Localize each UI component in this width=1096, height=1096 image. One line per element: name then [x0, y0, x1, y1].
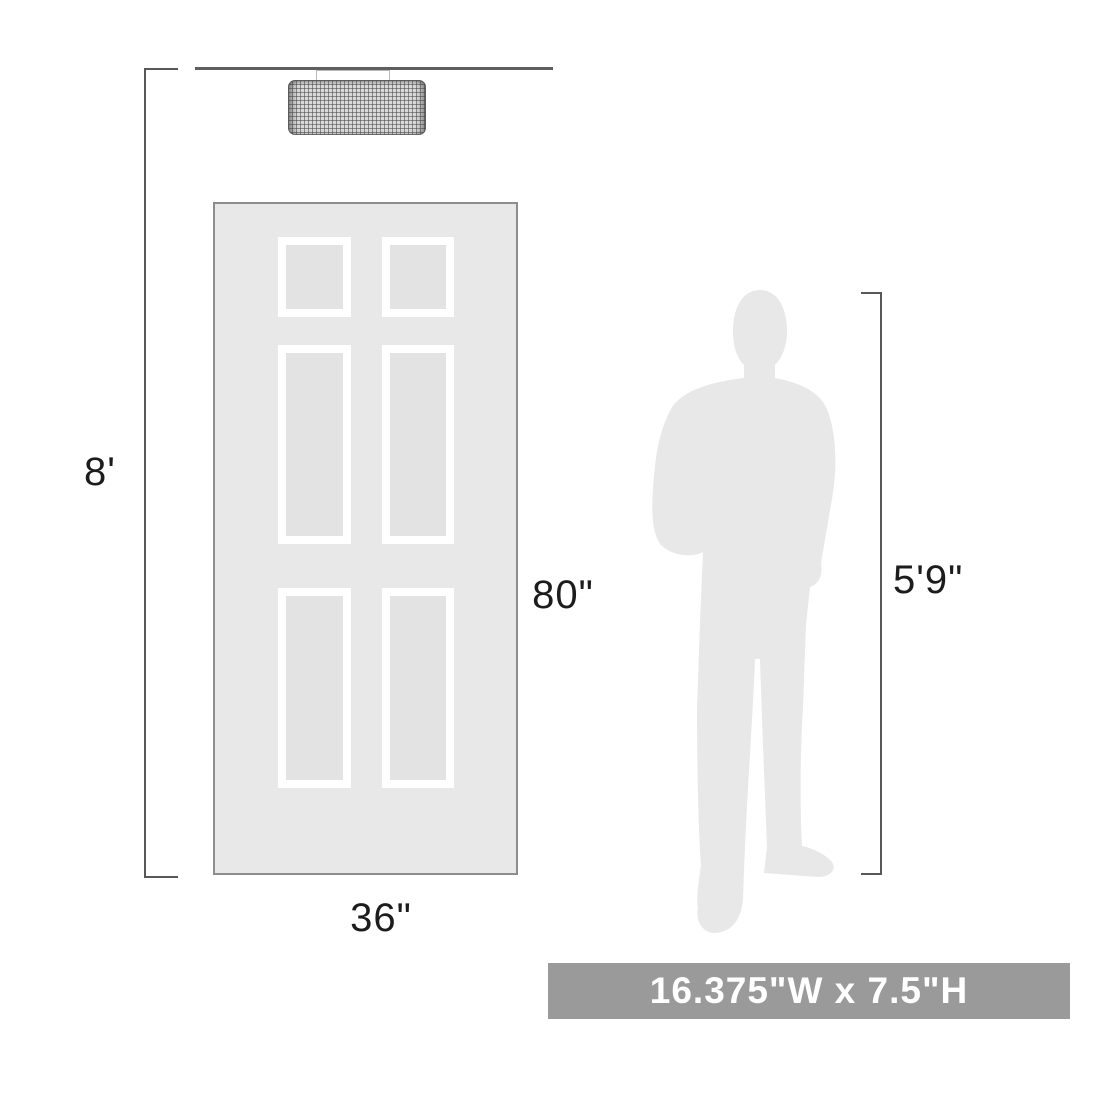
- door-panel: [382, 345, 454, 544]
- dimension-tick-top: [861, 292, 882, 294]
- dimension-tick-bottom: [144, 876, 178, 878]
- door-width-label: 36": [334, 896, 428, 941]
- person-silhouette: [648, 287, 848, 937]
- fixture-size-banner: 16.375"W x 7.5"H: [548, 963, 1070, 1019]
- fixture-size-text: 16.375"W x 7.5"H: [650, 970, 968, 1012]
- door-panel: [278, 345, 351, 544]
- door-panel: [278, 588, 351, 788]
- dimension-tick-bottom: [861, 873, 882, 875]
- dimension-vertical-line: [880, 292, 882, 875]
- dimension-tick-top: [144, 68, 178, 70]
- door-panel: [278, 237, 351, 317]
- product-dimensions-diagram: 8' 80" 36" 5'9" 16.375"W x 7.5"H: [0, 0, 1096, 1096]
- person-height-dimension-line: [861, 292, 882, 875]
- ceiling-height-dimension-line: [144, 68, 178, 878]
- person-silhouette-shape: [652, 290, 835, 933]
- ceiling-height-label: 8': [58, 450, 142, 495]
- door-panel: [382, 588, 454, 788]
- fixture-drum-shade: [288, 80, 426, 135]
- door-height-label: 80": [516, 573, 610, 618]
- dimension-vertical-line: [144, 68, 146, 878]
- person-height-label: 5'9": [893, 558, 963, 603]
- six-panel-door: [213, 202, 518, 875]
- door-panel: [382, 237, 454, 317]
